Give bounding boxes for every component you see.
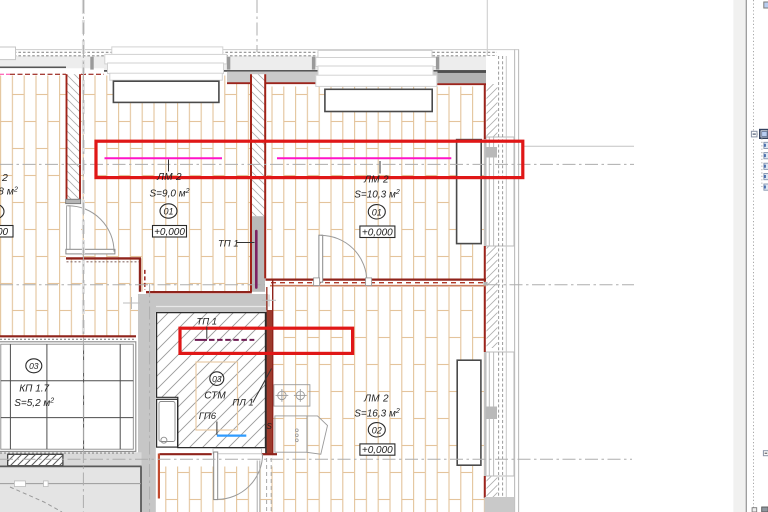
svg-text:S: S xyxy=(267,422,273,431)
svg-text:S=10,3 м2: S=10,3 м2 xyxy=(354,189,400,201)
svg-text:00: 00 xyxy=(0,227,9,238)
svg-text:+0,000: +0,000 xyxy=(362,445,393,456)
svg-text:ГП6: ГП6 xyxy=(199,411,217,422)
svg-text:ТП 1: ТП 1 xyxy=(196,317,217,328)
svg-text:03: 03 xyxy=(29,361,39,371)
svg-text:01: 01 xyxy=(163,207,173,217)
svg-text:ЛМ 2: ЛМ 2 xyxy=(363,394,389,405)
svg-text:03: 03 xyxy=(212,374,222,384)
svg-text:ТП 1: ТП 1 xyxy=(218,239,239,250)
svg-text:КП 1.7: КП 1.7 xyxy=(19,384,49,395)
svg-text:2: 2 xyxy=(1,172,8,184)
svg-text:СТМ: СТМ xyxy=(204,391,226,402)
svg-text:ПЛ 1: ПЛ 1 xyxy=(232,398,253,409)
svg-text:S=5,2 м2: S=5,2 м2 xyxy=(14,398,54,410)
svg-text:01: 01 xyxy=(372,207,382,217)
svg-text:02: 02 xyxy=(372,425,382,435)
svg-text:ЛМ 2: ЛМ 2 xyxy=(363,175,389,186)
svg-text:+0,000: +0,000 xyxy=(154,227,185,238)
svg-text:+0,000: +0,000 xyxy=(362,227,393,238)
svg-text:ЛМ 2: ЛМ 2 xyxy=(156,172,182,183)
svg-text:S=9,0 м2: S=9,0 м2 xyxy=(150,188,190,200)
svg-text:S=16,3 м2: S=16,3 м2 xyxy=(354,408,400,420)
